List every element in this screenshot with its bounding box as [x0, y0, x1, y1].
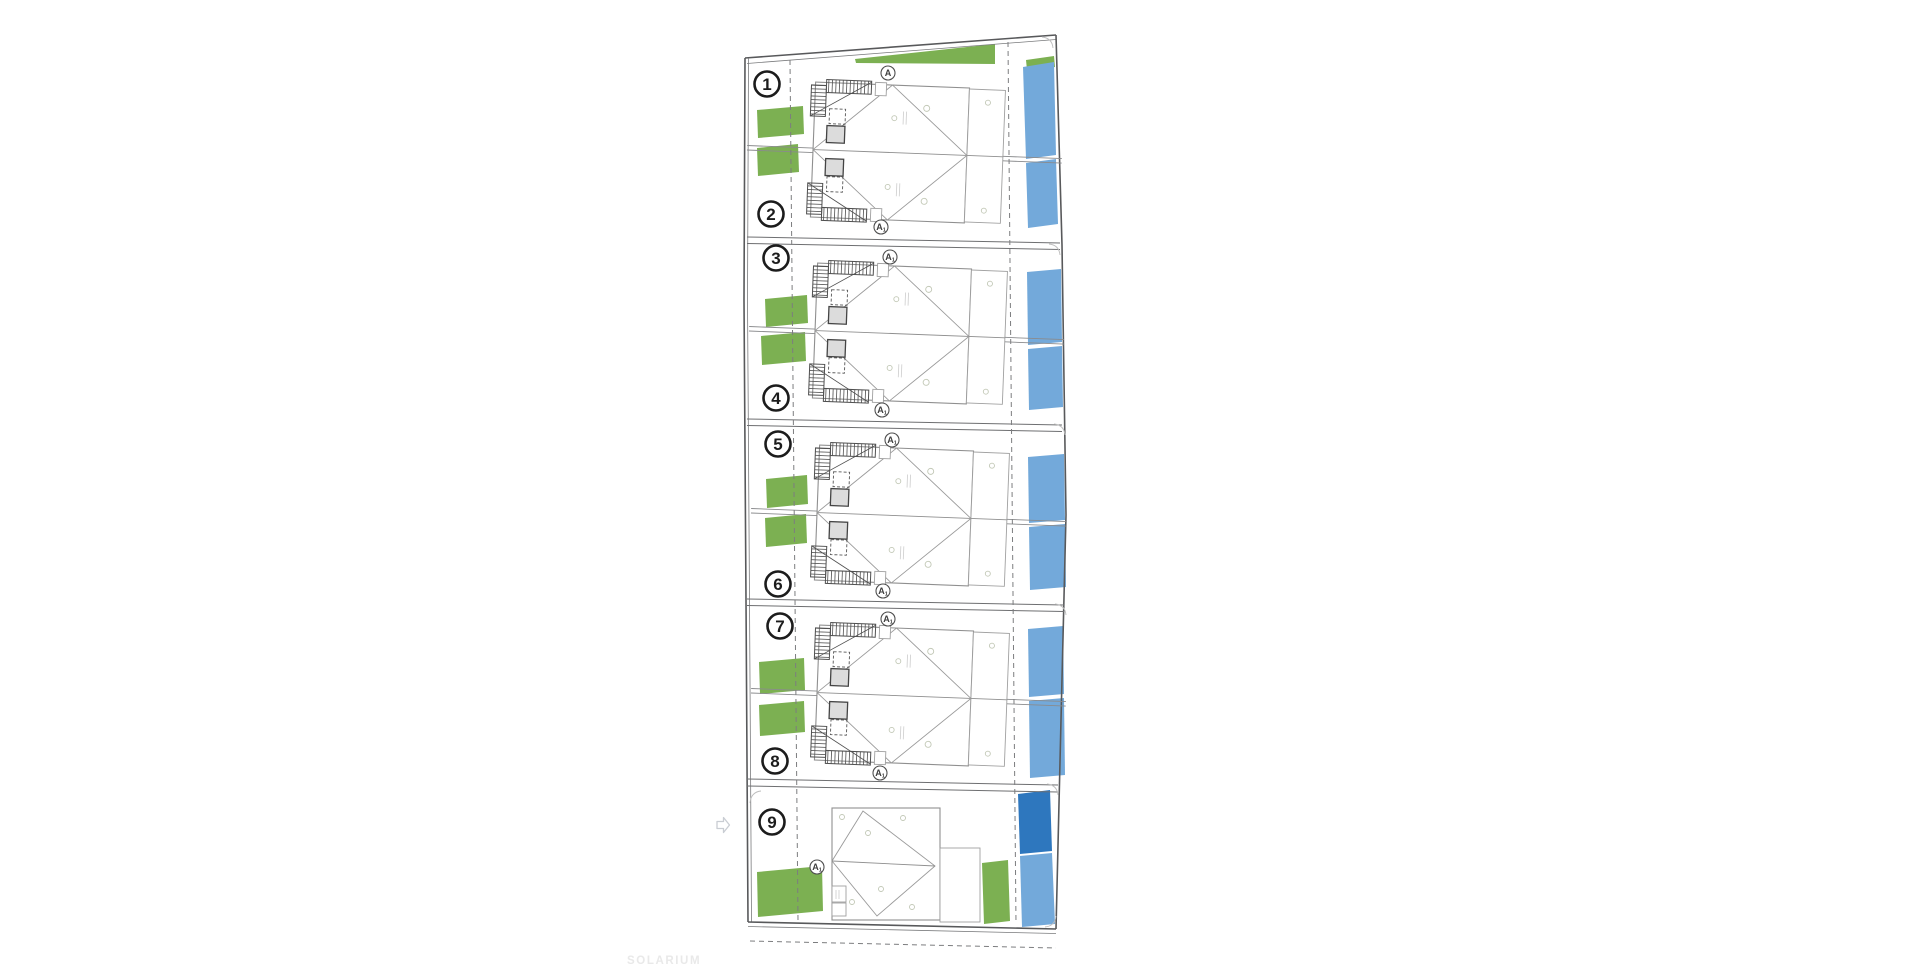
house-plan-units-7-8 [748, 620, 1068, 773]
unit-badge-1: 1 [755, 72, 780, 97]
pool-area [1023, 62, 1056, 159]
section-marker-A1: A1 [874, 220, 888, 234]
svg-text:5: 5 [773, 435, 782, 454]
garden-area [757, 144, 799, 176]
garden-area [855, 44, 995, 64]
unit-badge-4: 4 [764, 386, 789, 411]
pool-area [1027, 269, 1062, 345]
unit-badge-8: 8 [763, 749, 788, 774]
section-marker-A1: A1 [873, 766, 887, 780]
arrow-cursor-icon [717, 818, 730, 833]
svg-text:4: 4 [771, 389, 781, 408]
unit-badge-7: 7 [768, 614, 793, 639]
svg-text:8: 8 [770, 752, 779, 771]
unit-badge-5: 5 [766, 432, 791, 457]
section-marker-A1: A1 [875, 403, 889, 417]
section-marker-A1: A1 [883, 250, 897, 264]
garden-area [765, 295, 808, 327]
unit-badge-3: 3 [764, 246, 789, 271]
pool-area [1028, 454, 1065, 523]
pool-area-dark [1018, 790, 1052, 854]
garden-area [766, 475, 808, 508]
garden-area [759, 658, 805, 694]
section-marker-A1: A1 [881, 612, 895, 626]
svg-text:3: 3 [771, 249, 780, 268]
section-marker-A1: A1 [876, 584, 890, 598]
pool-area [1029, 524, 1066, 590]
garden-area [982, 860, 1010, 924]
garden-area [757, 106, 804, 138]
section-marker-A1: A1 [885, 433, 899, 447]
unit-badge-9: 9 [760, 810, 785, 835]
house-plan-unit-9 [832, 808, 980, 922]
garden-area [765, 514, 807, 547]
site-plan-drawing: 123456789 AA1A1A1A1A1A1A1A1 [0, 0, 1920, 980]
svg-text:2: 2 [766, 205, 775, 224]
watermark: SOLARIUM [627, 955, 701, 967]
pool-area [1028, 346, 1063, 410]
svg-text:9: 9 [767, 813, 776, 832]
svg-text:6: 6 [773, 575, 782, 594]
garden-area [761, 332, 806, 365]
garden-area [759, 701, 805, 736]
pool-area [1026, 159, 1058, 228]
section-marker-A: A [881, 66, 895, 80]
unit-badge-2: 2 [759, 202, 784, 227]
svg-text:7: 7 [775, 617, 784, 636]
svg-text:1: 1 [762, 75, 771, 94]
drawing-canvas: 123456789 AA1A1A1A1A1A1A1A1 SOLARIUM [0, 0, 1920, 980]
section-marker-A1: A1 [810, 860, 824, 874]
svg-text:A: A [885, 68, 892, 78]
pool-area [1028, 626, 1064, 697]
unit-badge-6: 6 [766, 572, 791, 597]
garden-area [757, 866, 823, 917]
pool-area [1020, 853, 1055, 927]
